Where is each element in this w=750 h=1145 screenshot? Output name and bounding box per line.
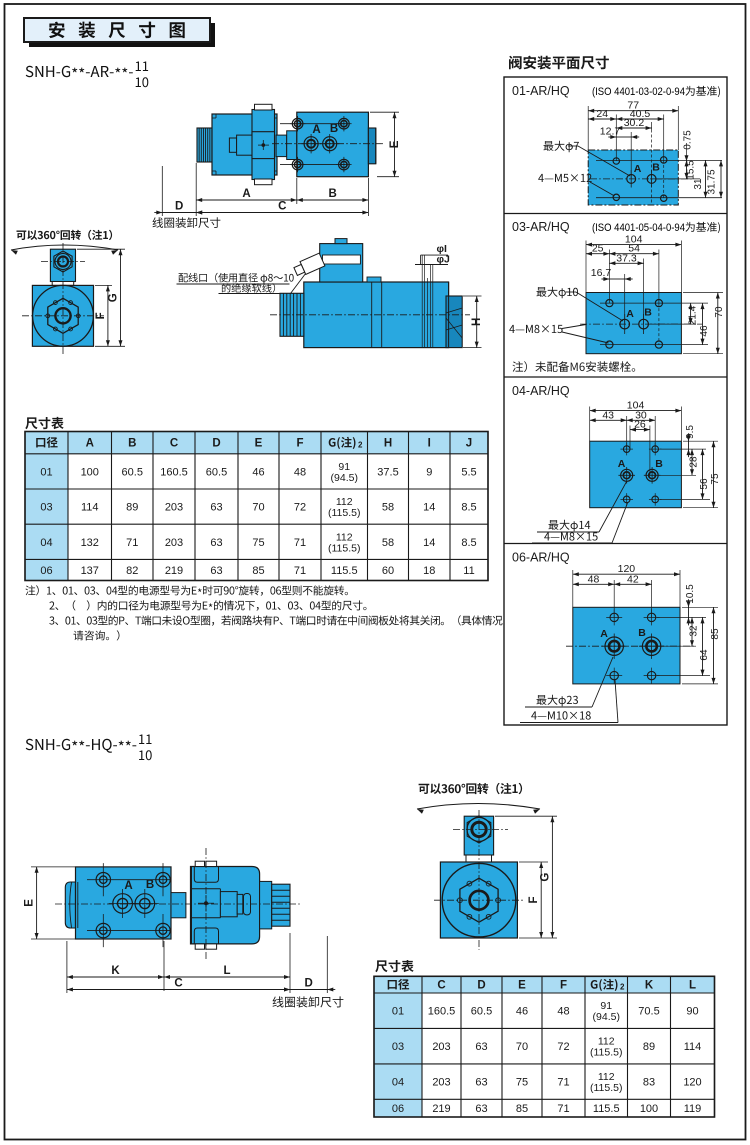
svg-text:0.75: 0.75 (683, 130, 694, 150)
svg-text:K: K (111, 965, 120, 977)
svg-text:D: D (175, 201, 183, 213)
svg-text:L: L (223, 965, 230, 977)
svg-text:8.5: 8.5 (461, 537, 476, 549)
svg-text:63: 63 (475, 1103, 487, 1115)
svg-text:F: F (528, 896, 540, 903)
svg-text:(94.5): (94.5) (593, 1011, 620, 1023)
svg-text:B: B (638, 627, 646, 639)
svg-text:31: 31 (693, 178, 704, 190)
svg-text:14: 14 (423, 502, 435, 514)
svg-text:72: 72 (294, 502, 306, 514)
svg-text:42: 42 (627, 573, 639, 585)
svg-text:04-AR/HQ: 04-AR/HQ (512, 384, 570, 398)
svg-text:2: 2 (620, 983, 625, 992)
svg-text:203: 203 (432, 1041, 450, 1053)
svg-text:C: C (174, 978, 182, 990)
svg-text:18: 18 (423, 565, 435, 577)
svg-text:46: 46 (699, 325, 710, 337)
svg-text:56: 56 (699, 478, 710, 490)
svg-text:04: 04 (392, 1077, 404, 1089)
svg-text:63: 63 (210, 502, 222, 514)
svg-text:60.5: 60.5 (122, 466, 143, 478)
svg-text:120: 120 (683, 1077, 701, 1089)
svg-text:70: 70 (252, 502, 264, 514)
svg-text:70: 70 (516, 1041, 528, 1053)
svg-text:A: A (124, 880, 132, 892)
svg-text:119: 119 (684, 1103, 702, 1115)
svg-text:100: 100 (640, 1103, 658, 1115)
svg-text:85: 85 (710, 628, 721, 640)
svg-text:(94.5): (94.5) (331, 472, 358, 484)
svg-text:15.5: 15.5 (686, 160, 697, 180)
svg-text:06-AR/HQ: 06-AR/HQ (512, 551, 570, 565)
svg-text:B: B (146, 879, 154, 891)
svg-text:219: 219 (165, 565, 183, 577)
svg-text:C: C (170, 438, 178, 450)
svg-text:28: 28 (689, 456, 700, 468)
svg-text:48: 48 (294, 466, 306, 478)
svg-text:(ISO 4401-05-04-0-94: (ISO 4401-05-04-0-94 (592, 222, 685, 234)
svg-text:32: 32 (689, 625, 700, 637)
svg-text:71: 71 (294, 565, 306, 577)
svg-text:63: 63 (210, 565, 222, 577)
svg-text:70.5: 70.5 (638, 1006, 659, 1018)
svg-text:89: 89 (643, 1041, 655, 1053)
svg-text:46: 46 (516, 1006, 528, 1018)
svg-text:F: F (296, 438, 303, 450)
svg-text:5.5: 5.5 (461, 466, 476, 478)
svg-text:G: G (108, 293, 120, 302)
svg-text:14: 14 (423, 537, 435, 549)
svg-text:(115.5): (115.5) (328, 542, 361, 554)
svg-text:D: D (304, 978, 312, 990)
svg-text:203: 203 (165, 537, 183, 549)
svg-text:137: 137 (81, 565, 99, 577)
svg-text:B: B (330, 123, 338, 135)
svg-text:63: 63 (210, 537, 222, 549)
svg-text:I: I (428, 438, 431, 450)
svg-text:A: A (86, 438, 94, 450)
svg-text:72: 72 (557, 1041, 569, 1053)
svg-text:75: 75 (516, 1077, 528, 1089)
svg-text:75: 75 (252, 537, 264, 549)
svg-text:82: 82 (126, 565, 138, 577)
svg-text:8.5: 8.5 (461, 502, 476, 514)
svg-text:K: K (645, 980, 654, 992)
svg-text:48: 48 (588, 573, 600, 585)
svg-text:114: 114 (684, 1041, 702, 1053)
svg-text:01-AR/HQ: 01-AR/HQ (512, 84, 570, 98)
svg-text:2: 2 (358, 441, 363, 450)
svg-text:F: F (560, 980, 567, 992)
svg-text:A: A (626, 308, 634, 320)
svg-text:71: 71 (126, 537, 138, 549)
svg-text:D: D (212, 438, 220, 450)
svg-text:B: B (655, 458, 663, 470)
svg-text:115.5: 115.5 (331, 565, 358, 577)
svg-text:03: 03 (40, 502, 52, 514)
svg-text:21.4: 21.4 (688, 305, 699, 325)
svg-text:(115.5): (115.5) (328, 507, 361, 519)
svg-text:115.5: 115.5 (593, 1103, 620, 1115)
svg-text:G: G (539, 873, 551, 882)
svg-text:J: J (466, 438, 472, 450)
svg-text:37.5: 37.5 (377, 466, 398, 478)
svg-text:83: 83 (643, 1077, 655, 1089)
svg-text:D: D (477, 980, 485, 992)
svg-text:C: C (437, 980, 445, 992)
svg-text:A: A (312, 124, 320, 136)
svg-text:43: 43 (602, 409, 614, 421)
svg-text:64: 64 (699, 649, 710, 661)
svg-text:37.3: 37.3 (616, 252, 637, 264)
svg-text:11: 11 (463, 565, 474, 577)
svg-text:C: C (278, 201, 286, 213)
svg-text:60.5: 60.5 (206, 466, 227, 478)
svg-text:63: 63 (475, 1077, 487, 1089)
svg-text:9.5: 9.5 (685, 425, 696, 439)
svg-text:203: 203 (432, 1077, 450, 1089)
svg-text:160.5: 160.5 (428, 1006, 456, 1018)
svg-text:(115.5): (115.5) (590, 1047, 623, 1059)
svg-text:E: E (24, 899, 36, 907)
svg-text:30.2: 30.2 (624, 117, 645, 129)
svg-text:E: E (255, 438, 263, 450)
svg-text:01: 01 (392, 1006, 404, 1018)
svg-text:12.7: 12.7 (600, 126, 621, 138)
svg-text:31.75: 31.75 (707, 169, 718, 194)
svg-text:L: L (689, 980, 696, 992)
svg-text:26: 26 (634, 419, 646, 431)
svg-text:24: 24 (596, 108, 608, 120)
svg-text:01: 01 (40, 466, 52, 478)
svg-text:85: 85 (516, 1103, 528, 1115)
svg-text:16.7: 16.7 (591, 267, 612, 279)
svg-text:06: 06 (392, 1103, 404, 1115)
svg-text:71: 71 (294, 537, 306, 549)
svg-text:75: 75 (710, 473, 721, 485)
svg-text:100: 100 (81, 466, 99, 478)
svg-text:71: 71 (557, 1077, 569, 1089)
svg-text:F: F (95, 312, 107, 319)
svg-text:03-AR/HQ: 03-AR/HQ (512, 220, 570, 234)
svg-text:71: 71 (557, 1103, 569, 1115)
svg-text:B: B (652, 162, 660, 174)
svg-text:48: 48 (557, 1006, 569, 1018)
svg-text:25: 25 (592, 243, 604, 255)
svg-text:H: H (471, 318, 483, 326)
svg-text:E: E (518, 980, 526, 992)
svg-text:A: A (634, 163, 642, 175)
svg-text:60: 60 (382, 565, 394, 577)
svg-text:60.5: 60.5 (471, 1006, 492, 1018)
svg-text:58: 58 (382, 502, 394, 514)
svg-text:10.5: 10.5 (685, 584, 696, 604)
svg-text:9: 9 (426, 466, 432, 478)
svg-text:89: 89 (126, 502, 138, 514)
svg-text:114: 114 (81, 502, 99, 514)
svg-text:04: 04 (40, 537, 52, 549)
svg-text:85: 85 (252, 565, 264, 577)
svg-text:203: 203 (165, 502, 183, 514)
svg-text:(115.5): (115.5) (590, 1082, 623, 1094)
svg-text:03: 03 (392, 1041, 404, 1053)
svg-text:A: A (600, 628, 608, 640)
svg-text:A: A (618, 458, 626, 470)
svg-text:B: B (128, 438, 136, 450)
svg-text:(ISO 4401-03-02-0-94: (ISO 4401-03-02-0-94 (592, 86, 685, 98)
svg-text:A: A (242, 188, 250, 200)
svg-text:06: 06 (40, 565, 52, 577)
svg-text:132: 132 (81, 537, 99, 549)
svg-text:B: B (644, 307, 652, 319)
svg-text:160.5: 160.5 (160, 466, 188, 478)
svg-text:E: E (389, 140, 401, 148)
svg-text:B: B (328, 188, 336, 200)
svg-text:46: 46 (252, 466, 264, 478)
svg-text:90: 90 (686, 1006, 698, 1018)
svg-text:H: H (384, 438, 392, 450)
svg-text:φJ: φJ (437, 253, 451, 265)
svg-text:58: 58 (382, 537, 394, 549)
svg-text:219: 219 (432, 1103, 450, 1115)
svg-text:70: 70 (714, 306, 725, 318)
svg-text:63: 63 (475, 1041, 487, 1053)
